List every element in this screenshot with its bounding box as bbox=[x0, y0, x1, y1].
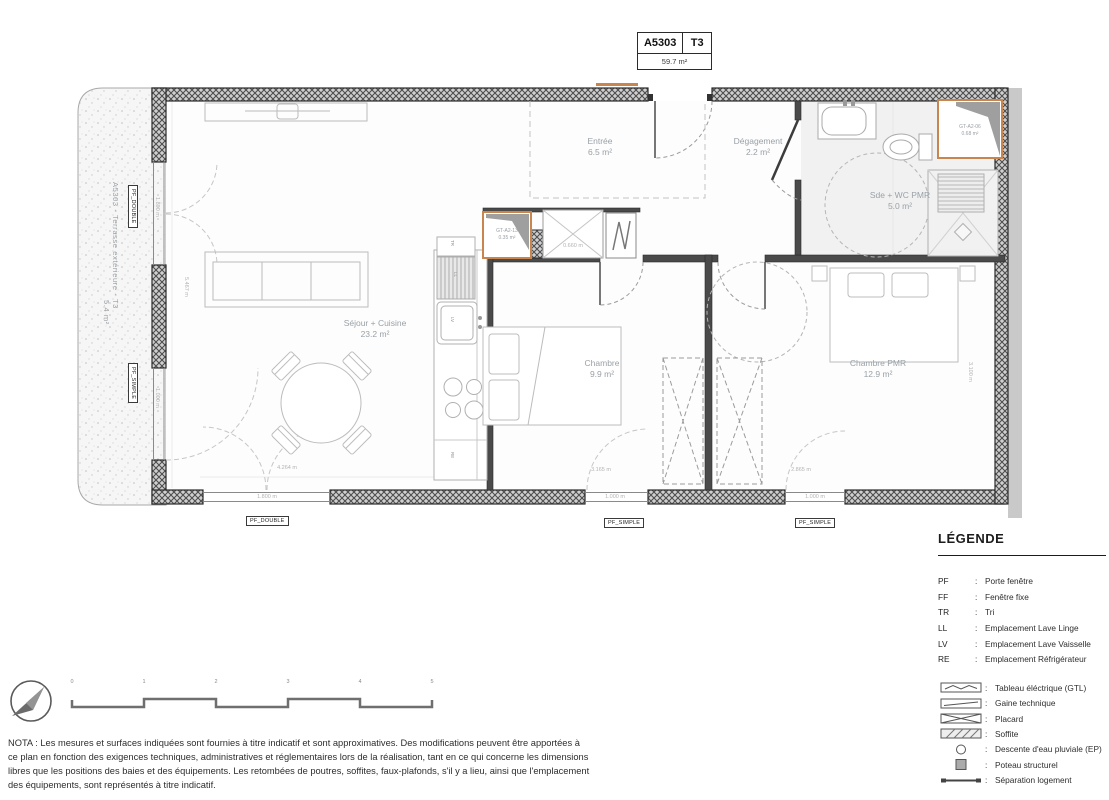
unit-area: 59.7 m² bbox=[638, 54, 711, 69]
scale-label-5: 5 bbox=[430, 679, 433, 685]
legend-row-separation: : Séparation logement bbox=[938, 772, 1106, 787]
legend-row-lv: LV : Emplacement Lave Vaisselle bbox=[938, 636, 1106, 652]
dim-left-window-top: 1.800 m bbox=[154, 197, 160, 217]
entree-placard bbox=[543, 210, 603, 258]
dining-table bbox=[271, 351, 372, 455]
tag-refrigerateur: RE bbox=[450, 452, 455, 458]
poteau-symbol bbox=[938, 758, 985, 771]
scale-label-3: 3 bbox=[286, 679, 289, 685]
legend-row-pf: PF : Porte fenêtre bbox=[938, 573, 1106, 589]
dim-sejour-width: 4.264 m bbox=[262, 465, 312, 471]
legend-row-ff: FF : Fenêtre fixe bbox=[938, 589, 1106, 605]
terrace-label: A5303 - Terrasse extérieure - T3 bbox=[111, 182, 120, 309]
room-label-chambre-pmr: Chambre PMR12.9 m² bbox=[823, 358, 933, 380]
window-tag-pf-simple-bottom-2: PF_SIMPLE bbox=[795, 518, 835, 528]
separation-symbol bbox=[938, 774, 985, 787]
bed-chambre-pmr bbox=[812, 266, 975, 362]
window-tag-pf-double-bottom: PF_DOUBLE bbox=[246, 516, 289, 526]
room-label-sejour: Séjour + Cuisine23.2 m² bbox=[320, 318, 430, 340]
legend-row-ll: LL : Emplacement Lave Linge bbox=[938, 620, 1106, 636]
gtl-box bbox=[606, 213, 636, 258]
legend-row-ep: : Descente d'eau pluviale (EP) bbox=[938, 742, 1106, 757]
dim-sejour-height: 5.467 m bbox=[183, 277, 189, 297]
ep-symbol bbox=[938, 743, 985, 756]
dim-chambre-pmr-height: 3.100 m bbox=[967, 362, 973, 382]
legend-row-gaine: : Gaine technique bbox=[938, 696, 1106, 711]
legend-row-tr: TR : Tri bbox=[938, 604, 1106, 620]
legend-row-gtl: : Tableau éléctrique (GTL) bbox=[938, 680, 1106, 695]
room-label-sde: Sde + WC PMR5.0 m² bbox=[845, 190, 955, 212]
unit-number: A5303 bbox=[638, 33, 683, 53]
washbasin bbox=[818, 100, 876, 139]
legend-title: LÉGENDE bbox=[938, 531, 1106, 556]
north-arrow bbox=[11, 681, 51, 721]
scale-label-2: 2 bbox=[214, 679, 217, 685]
legend-row-placard: : Placard bbox=[938, 711, 1106, 726]
legend-row-poteau: : Poteau structurel bbox=[938, 757, 1106, 772]
window-tag-pf-simple-bottom-1: PF_SIMPLE bbox=[604, 518, 644, 528]
tag-lave-vaisselle: LV bbox=[450, 317, 455, 322]
terrace-area: 5.4 m² bbox=[102, 300, 111, 325]
dim-chambre-pmr-width: 2.865 m bbox=[776, 467, 826, 473]
legend-row-soffite: : Soffite bbox=[938, 726, 1106, 741]
legend: LÉGENDE PF : Porte fenêtre FF : Fenêtre … bbox=[938, 531, 1106, 788]
dim-bottom-window-left: 1.800 m bbox=[242, 494, 292, 500]
scale-label-4: 4 bbox=[358, 679, 361, 685]
legend-symbols: : Tableau éléctrique (GTL) : Gaine techn… bbox=[938, 680, 1106, 788]
room-label-chambre: Chambre9.9 m² bbox=[547, 358, 657, 380]
nota-text: NOTA : Les mesures et surfaces indiquées… bbox=[8, 736, 592, 793]
placard-symbol bbox=[938, 712, 985, 725]
unit-type: T3 bbox=[683, 33, 711, 53]
scale-label-0: 0 bbox=[70, 679, 73, 685]
legend-abbreviations: PF : Porte fenêtre FF : Fenêtre fixe TR … bbox=[938, 573, 1106, 667]
soffite-strip bbox=[596, 83, 638, 86]
dim-left-window-bottom: 1.000 m bbox=[154, 388, 160, 408]
legend-row-re: RE : Emplacement Réfrigérateur bbox=[938, 651, 1106, 667]
window-tag-pf-double-left: PF_DOUBLE bbox=[128, 185, 138, 228]
dim-bottom-window-mid: 1.000 m bbox=[590, 494, 640, 500]
dim-chambre-width: 3.165 m bbox=[576, 467, 626, 473]
dim-bottom-window-right: 1.000 m bbox=[790, 494, 840, 500]
kitchen-counter bbox=[434, 237, 487, 480]
shower bbox=[928, 170, 998, 256]
tag-lave-linge: LL bbox=[453, 272, 458, 277]
dim-placard-entree: 0.660 m bbox=[551, 243, 595, 249]
floorplan-sheet: A5303 T3 59.7 m² A5303 - Terrasse extéri… bbox=[0, 0, 1109, 800]
window-tag-pf-simple-left: PF_SIMPLE bbox=[128, 363, 138, 403]
gtl-symbol bbox=[938, 681, 985, 694]
title-block: A5303 T3 59.7 m² bbox=[637, 32, 712, 70]
room-label-gt13: GT-A2-130.35 m² bbox=[484, 228, 530, 242]
scale-label-1: 1 bbox=[142, 679, 145, 685]
room-label-degagement: Dégagement2.2 m² bbox=[703, 136, 813, 158]
tag-tri: TR bbox=[450, 240, 455, 246]
soffite-symbol bbox=[938, 727, 985, 740]
gaine-symbol bbox=[938, 697, 985, 710]
room-label-entree: Entrée6.5 m² bbox=[545, 136, 655, 158]
room-label-gt06: GT-A2-060.68 m² bbox=[938, 124, 1002, 138]
toilet bbox=[883, 134, 932, 160]
scale-bar bbox=[72, 699, 432, 707]
